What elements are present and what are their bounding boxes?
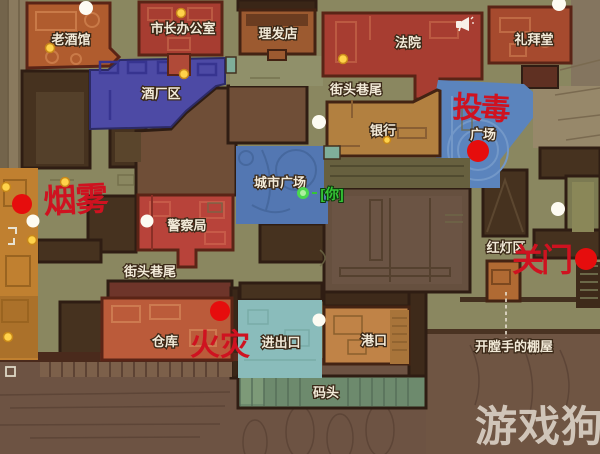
svg-text:礼拜堂: 礼拜堂 — [514, 32, 553, 47]
svg-text:广场: 广场 — [470, 127, 496, 142]
svg-text:法院: 法院 — [395, 35, 421, 50]
svg-text:关门: 关门 — [512, 242, 571, 278]
svg-text:酒厂区: 酒厂区 — [141, 86, 180, 101]
svg-text:火灾: 火灾 — [190, 328, 250, 362]
svg-text:理发店: 理发店 — [258, 26, 297, 41]
svg-text:烟雾: 烟雾 — [42, 180, 110, 220]
svg-text:游戏狗: 游戏狗 — [475, 403, 600, 450]
svg-text:港口: 港口 — [361, 333, 387, 348]
svg-text:老酒馆: 老酒馆 — [50, 32, 90, 47]
svg-text:开膛手的棚屋: 开膛手的棚屋 — [475, 339, 553, 354]
svg-text:市长办公室: 市长办公室 — [150, 21, 215, 36]
svg-text:街头巷尾: 街头巷尾 — [329, 82, 382, 97]
svg-text:[你]: [你] — [320, 186, 343, 202]
svg-text:警察局: 警察局 — [167, 218, 206, 233]
svg-text:仓库: 仓库 — [151, 334, 178, 349]
svg-text:银行: 银行 — [370, 123, 396, 138]
svg-text:码头: 码头 — [313, 385, 339, 400]
svg-text:进出口: 进出口 — [261, 335, 300, 350]
svg-text:城市广场: 城市广场 — [254, 175, 306, 190]
svg-text:街头巷尾: 街头巷尾 — [123, 264, 176, 279]
svg-text:投毒: 投毒 — [452, 91, 512, 127]
